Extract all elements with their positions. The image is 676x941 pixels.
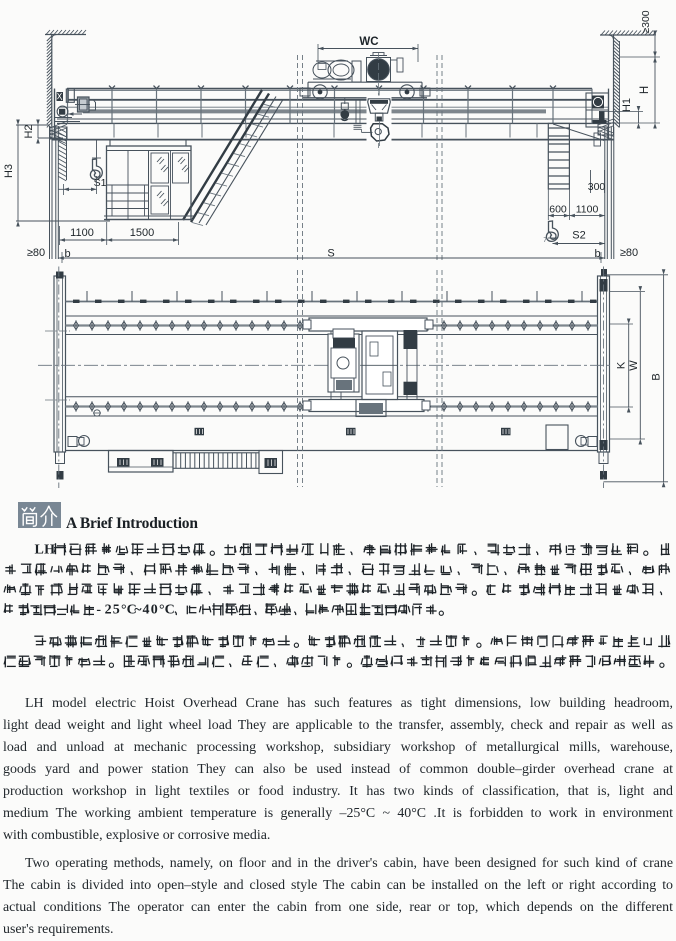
svg-text:-: - [96,603,101,618]
svg-text:H: H [44,543,55,558]
svg-text:~: ~ [134,603,142,618]
svg-text:0: 0 [151,603,158,618]
svg-text:L: L [35,543,44,558]
svg-text:5: 5 [113,603,120,618]
svg-text:°C: °C [159,603,175,618]
svg-text:2: 2 [105,603,112,618]
svg-text:4: 4 [143,603,150,618]
